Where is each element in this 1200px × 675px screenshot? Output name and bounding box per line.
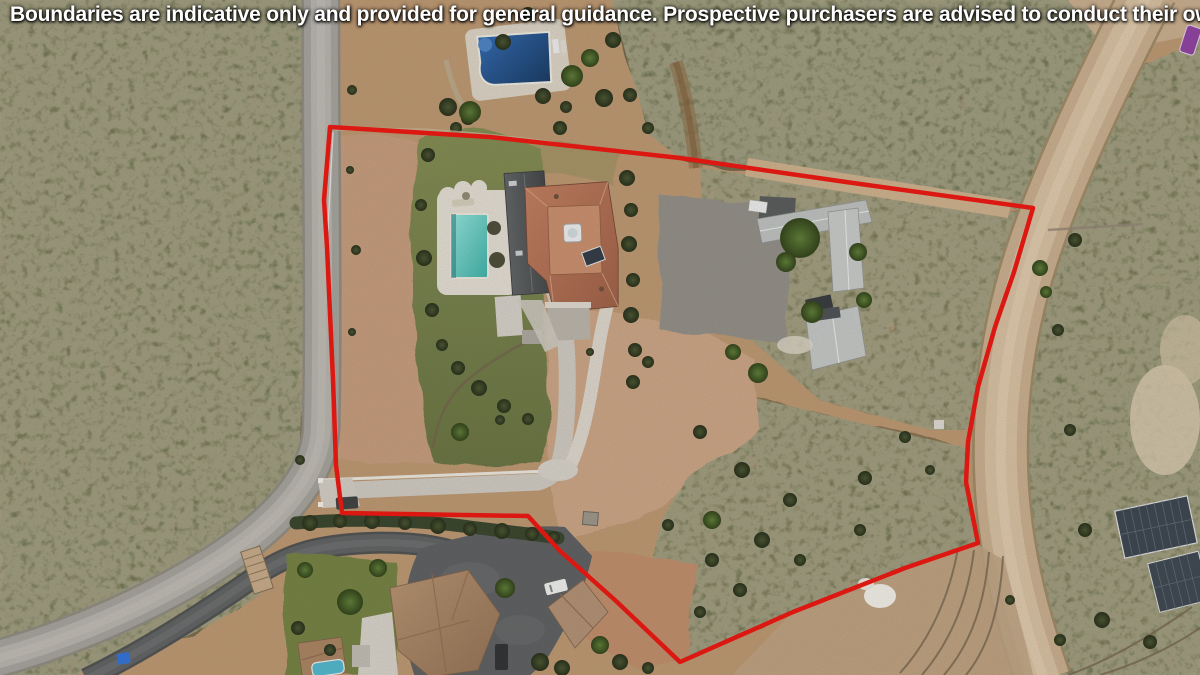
disclaimer-banner: Boundaries are indicative only and provi… [10, 3, 1195, 27]
aerial-photo-canvas [0, 0, 1200, 675]
grain-overlay [0, 0, 1200, 675]
aerial-property-photo: Boundaries are indicative only and provi… [0, 0, 1200, 675]
